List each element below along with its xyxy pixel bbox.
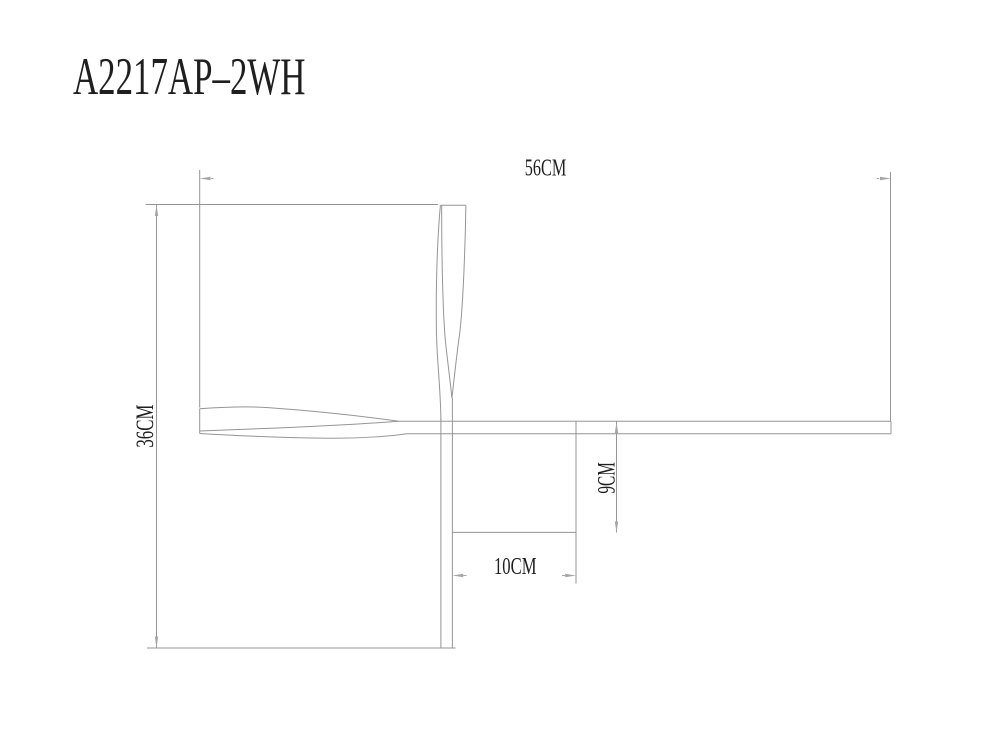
svg-text:10CM: 10CM (494, 554, 537, 580)
svg-text:56CM: 56CM (525, 155, 567, 181)
svg-text:36CM: 36CM (132, 405, 159, 448)
svg-text:9CM: 9CM (593, 462, 620, 494)
svg-text:A2217AP–2WH: A2217AP–2WH (73, 48, 306, 106)
